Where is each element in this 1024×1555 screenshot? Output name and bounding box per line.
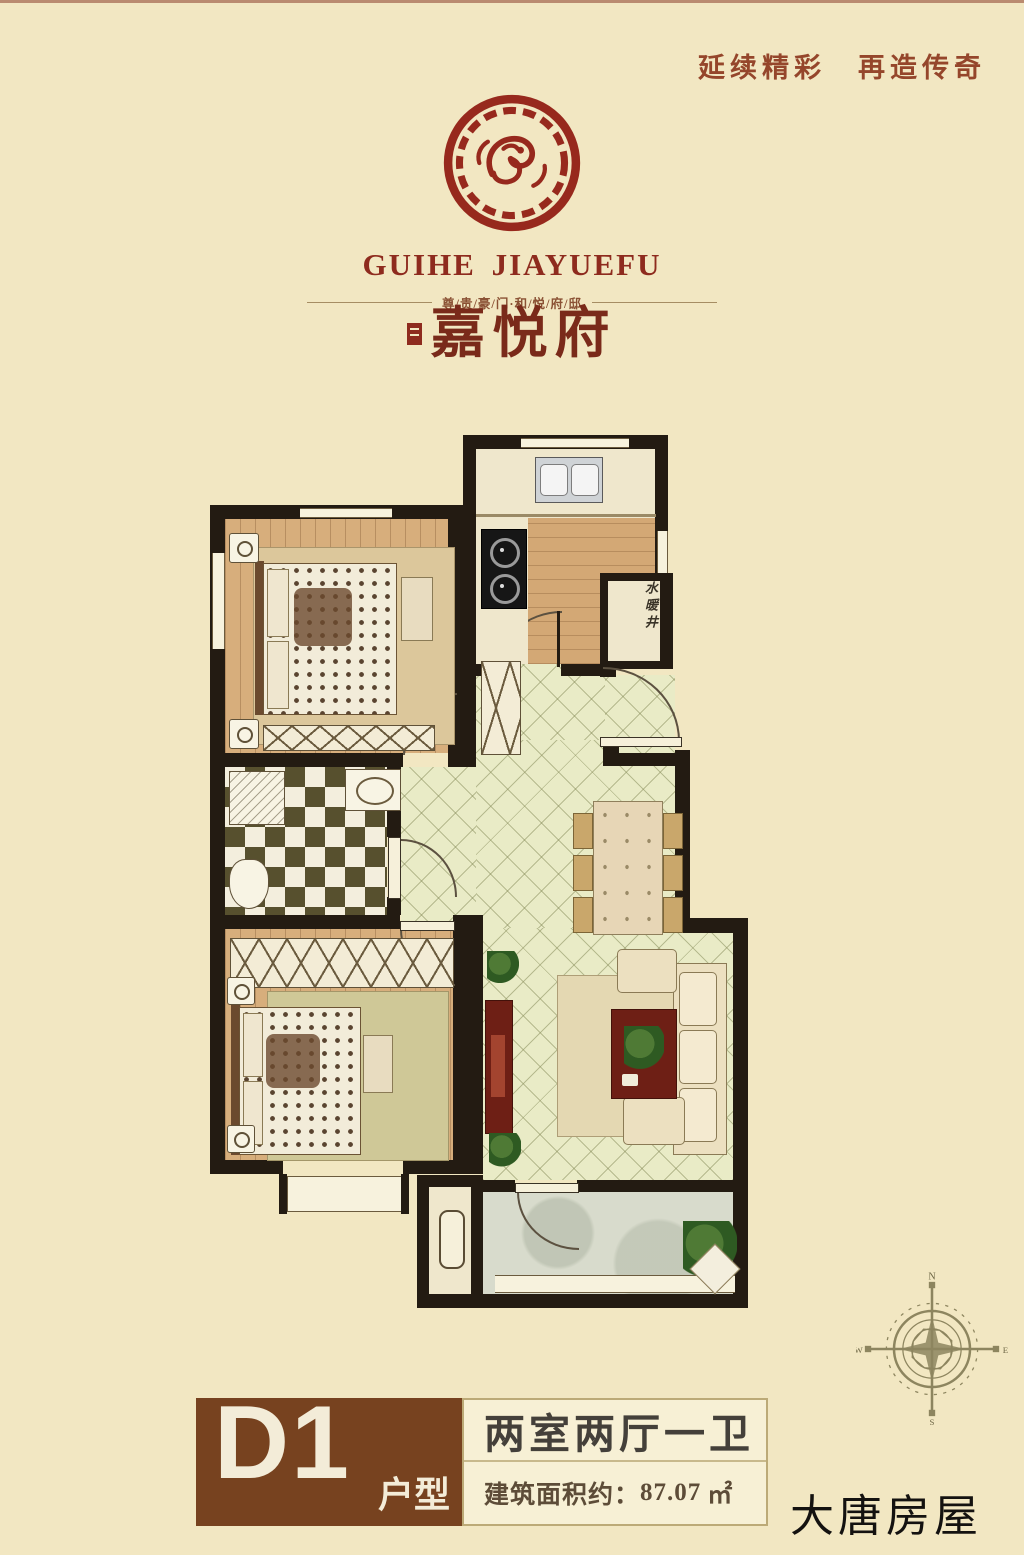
- kitchen-door-leaf: [557, 611, 560, 667]
- tagline-rule-left: [307, 302, 432, 303]
- dining-chair: [663, 855, 683, 891]
- entry-door-leaf: [600, 737, 682, 747]
- plant-icon: [489, 1133, 521, 1167]
- compass-w: W: [856, 1345, 863, 1355]
- hall-cabinet: [481, 661, 521, 755]
- bed1-pillow: [267, 569, 289, 637]
- counter-divider: [476, 514, 656, 517]
- unit-code-box: D1 户型: [196, 1398, 462, 1526]
- dining-chair: [663, 897, 683, 933]
- unit-code-suffix: 户型: [378, 1466, 450, 1518]
- wall: [210, 753, 403, 767]
- wall: [471, 1175, 483, 1306]
- brand-name-en: GUIHE JIAYUEFU: [0, 247, 1024, 283]
- bed1-nightstand: [229, 719, 259, 749]
- dragon-medallion-icon: [441, 92, 583, 234]
- brand-seal-icon: [407, 323, 422, 345]
- wall: [561, 664, 600, 676]
- unit-layout-text: 两室两厅一卫: [464, 1400, 766, 1460]
- wall: [453, 915, 483, 1174]
- header-slogan: 延续精彩 再造传奇: [698, 46, 986, 85]
- top-border-line: [0, 0, 1024, 3]
- tv-cabinet: [485, 1000, 513, 1134]
- unit-code: D1: [214, 1384, 351, 1503]
- brand-name-cn: 嘉悦府: [430, 306, 616, 361]
- dining-table: [593, 801, 663, 935]
- wall: [455, 753, 476, 767]
- unit-area-row: 建筑面积约： 87.07 ㎡: [464, 1460, 766, 1524]
- bedroom1-bench: [263, 725, 435, 751]
- unit-info-panel: 两室两厅一卫 建筑面积约： 87.07 ㎡: [462, 1398, 768, 1526]
- area-label: 建筑面积约：: [484, 1475, 640, 1511]
- wall: [387, 897, 401, 915]
- utility-fixture: [439, 1210, 465, 1269]
- compass-n: N: [928, 1271, 936, 1282]
- wall: [733, 918, 748, 1180]
- area-unit: ㎡: [707, 1475, 733, 1511]
- window: [212, 553, 225, 649]
- wall: [401, 1174, 409, 1214]
- bed2-side-chair: [363, 1035, 393, 1093]
- shower-icon: [229, 771, 285, 825]
- bed2-nightstand: [227, 1125, 255, 1153]
- shaft-label: 水暖井: [608, 581, 660, 661]
- bay-window: [287, 1176, 403, 1212]
- bed1-nightstand: [229, 533, 259, 563]
- wall: [577, 1180, 733, 1192]
- wall: [610, 753, 680, 766]
- coffee-table: [611, 1009, 677, 1099]
- compass-s: S: [930, 1417, 935, 1427]
- wall: [483, 1180, 515, 1192]
- bed1-pillow: [267, 641, 289, 709]
- floor-plan: 水暖井: [205, 435, 765, 1320]
- balcony-door-leaf: [515, 1183, 579, 1193]
- wall: [600, 573, 668, 581]
- armchair: [623, 1097, 685, 1145]
- toilet-icon: [229, 859, 269, 909]
- wall: [403, 1160, 453, 1174]
- brochure-page: 延续精彩 再造传奇 GUIHE JIAYUEFU 尊/贵/豪/门·和/悦/府/邸…: [0, 0, 1024, 1555]
- wall: [417, 1175, 429, 1306]
- brand-logo-medallion: [441, 92, 583, 234]
- dining-chair: [663, 813, 683, 849]
- window: [521, 438, 629, 448]
- area-value: 87.07: [640, 1479, 701, 1507]
- bathroom-door-leaf: [388, 837, 401, 899]
- wall: [279, 1174, 287, 1214]
- double-sink-icon: [535, 457, 603, 503]
- plant-icon: [487, 951, 519, 983]
- dining-chair: [573, 855, 593, 891]
- bedroom2-wardrobe: [230, 938, 454, 988]
- bedroom2-door-leaf: [400, 921, 455, 931]
- window: [300, 508, 392, 518]
- armchair: [617, 949, 677, 993]
- wall: [210, 1160, 283, 1174]
- bed2-nightstand: [227, 977, 255, 1005]
- window: [657, 531, 668, 573]
- wall: [210, 915, 400, 929]
- dining-chair: [573, 813, 593, 849]
- stove-icon: [481, 529, 527, 609]
- brand-name-cn-row: 嘉悦府: [0, 306, 1024, 361]
- bed2-pillow: [243, 1013, 263, 1077]
- bath-sink-icon: [345, 769, 401, 811]
- compass-icon: N E S W: [856, 1268, 1008, 1430]
- dining-chair: [573, 897, 593, 933]
- wall: [417, 1294, 748, 1308]
- agency-watermark: 大唐房屋: [790, 1480, 982, 1544]
- compass-e: E: [1003, 1345, 1008, 1355]
- bed1-side-chair: [401, 577, 433, 641]
- wall: [660, 573, 673, 669]
- wall: [600, 573, 608, 669]
